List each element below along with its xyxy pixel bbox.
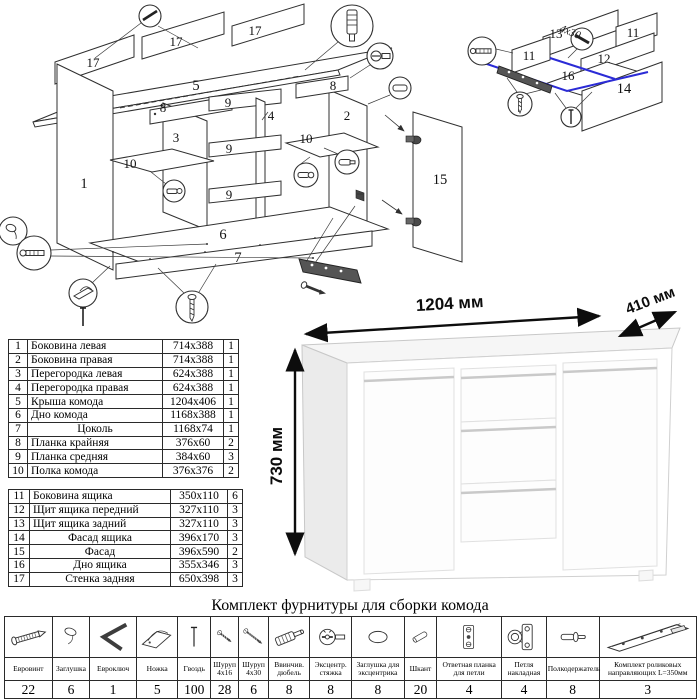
callout-dowel <box>368 77 411 104</box>
table-row: 16Дно ящика355x3463 <box>9 558 243 572</box>
part-label-8-right: 8 <box>330 78 337 93</box>
plug-icon <box>53 618 89 656</box>
door-15: 15 <box>382 112 462 262</box>
part-label-4: 4 <box>268 108 275 123</box>
drawer-exploded-diagram: 13 11 11 12 16 14 <box>455 0 700 190</box>
table-row: 1Боковина левая714x3881 <box>9 340 239 354</box>
width-dimension-label: 1204 мм <box>415 292 484 315</box>
part-label-7: 7 <box>234 250 241 266</box>
dimension-height: 730 мм <box>267 350 295 554</box>
left-side-1: 1 <box>57 64 113 270</box>
part-label-9-middle: 9 <box>226 141 233 156</box>
part-label-3: 3 <box>173 130 180 145</box>
part-label-14: 14 <box>617 81 632 97</box>
part-label-11-right: 11 <box>627 25 640 40</box>
shelf-support-icon <box>553 618 593 656</box>
nail-icon <box>179 618 209 656</box>
partition-4: 4 <box>256 98 275 226</box>
hardware-kit-title: Комплект фурнитуры для сборки комода <box>0 597 700 615</box>
part-label-1: 1 <box>80 176 87 192</box>
hardware-kit-table: Евровинт Заглушка Евроключ Ножка Гвоздь … <box>4 616 697 699</box>
roller-guides-icon <box>603 618 693 656</box>
assembly-instruction-sheet: 17 17 17 5 1 3 8 9 <box>0 0 700 700</box>
hinge-plate-icon <box>452 618 486 656</box>
dresser-foot-right <box>639 570 653 581</box>
table-row: 8Планка крайняя376x602 <box>9 436 239 450</box>
height-dimension-label: 730 мм <box>267 427 286 485</box>
screw-long-icon <box>240 618 267 656</box>
depth-dimension-label: 410 мм <box>623 284 677 318</box>
part-label-5: 5 <box>192 78 199 94</box>
part-label-15: 15 <box>433 172 448 188</box>
dresser-render: 1204 мм 410 мм 730 мм <box>268 292 700 604</box>
drawer-rail <box>497 66 552 94</box>
callout-shelf-pin-right <box>294 157 318 187</box>
wood-dowel-icon <box>405 618 435 656</box>
table-row: 17Стенка задняя650x3983 <box>9 572 243 586</box>
hex-key-icon <box>91 618 135 656</box>
plank-9-bottom: 9 <box>209 181 281 203</box>
table-row: 15Фасад396x5902 <box>9 545 243 559</box>
part-label-8-left: 8 <box>160 100 167 115</box>
hardware-labels-row: Евровинт Заглушка Евроключ Ножка Гвоздь … <box>5 658 697 681</box>
part-label-10-right: 10 <box>300 131 313 146</box>
part-label-9-top: 9 <box>225 95 232 110</box>
table-row: 11Боковина ящика350x1106 <box>9 490 243 504</box>
table-row: 6Дно комода1168x3881 <box>9 408 239 422</box>
dresser-drawer-2 <box>461 418 556 484</box>
threaded-dowel-icon <box>269 618 309 656</box>
main-exploded-diagram: 17 17 17 5 1 3 8 9 <box>0 0 490 336</box>
dresser-drawer-3 <box>461 480 556 542</box>
door-hinge-top <box>406 136 421 144</box>
euro-screw-icon <box>6 618 50 656</box>
door-hinge-bottom <box>406 218 421 226</box>
screw-short-icon <box>212 618 238 656</box>
dimension-width: 1204 мм <box>306 292 599 334</box>
callout-rail-screw <box>508 92 532 116</box>
table-row: 3Перегородка левая624x3881 <box>9 367 239 381</box>
foot-icon <box>137 618 177 656</box>
callout-drawer-euro-screw <box>468 37 513 65</box>
callout-foot <box>69 266 110 326</box>
dresser-right-door <box>563 359 657 570</box>
table-row: 5Крыша комода1204x4061 <box>9 395 239 409</box>
part-label-17-left: 17 <box>87 55 101 70</box>
dresser-left-door <box>364 368 454 574</box>
plank-9-middle: 9 <box>209 135 281 157</box>
table-row: 10Полка комода376x3762 <box>9 464 239 478</box>
cam-lock-icon <box>311 618 351 656</box>
parts-table-cabinet: 1Боковина левая714x3881 2Боковина правая… <box>8 339 239 478</box>
part-label-16: 16 <box>562 68 576 83</box>
part-label-10-left: 10 <box>124 156 137 171</box>
table-row: 4Перегородка правая624x3881 <box>9 381 239 395</box>
cam-cover-icon <box>358 618 398 656</box>
parts-table-drawers: 11Боковина ящика350x1106 12Щит ящика пер… <box>8 489 243 587</box>
table-row: 12Щит ящика передний327x1103 <box>9 503 243 517</box>
hinge-icon <box>504 618 544 656</box>
table-row: 14Фасад ящика396x1703 <box>9 531 243 545</box>
part-label-9-bottom: 9 <box>226 187 233 202</box>
part-label-17-right: 17 <box>249 23 263 38</box>
hardware-qty-row: 22 6 1 5 100 28 6 8 8 8 20 4 4 8 3 <box>5 681 697 699</box>
table-row: 13Щит ящика задний327x1103 <box>9 517 243 531</box>
dresser-foot-left <box>354 579 370 591</box>
dresser-drawer-1 <box>461 365 556 422</box>
drawer-side-11-left: 11 <box>512 37 550 73</box>
table-row: 9Планка средняя384x603 <box>9 450 239 464</box>
table-row: 2Боковина правая714x3881 <box>9 353 239 367</box>
hardware-icons-row <box>5 617 697 658</box>
part-label-2: 2 <box>344 108 351 123</box>
part-label-11-left: 11 <box>523 48 536 63</box>
part-label-6: 6 <box>219 227 226 243</box>
table-row: 7Цоколь1168x741 <box>9 422 239 436</box>
